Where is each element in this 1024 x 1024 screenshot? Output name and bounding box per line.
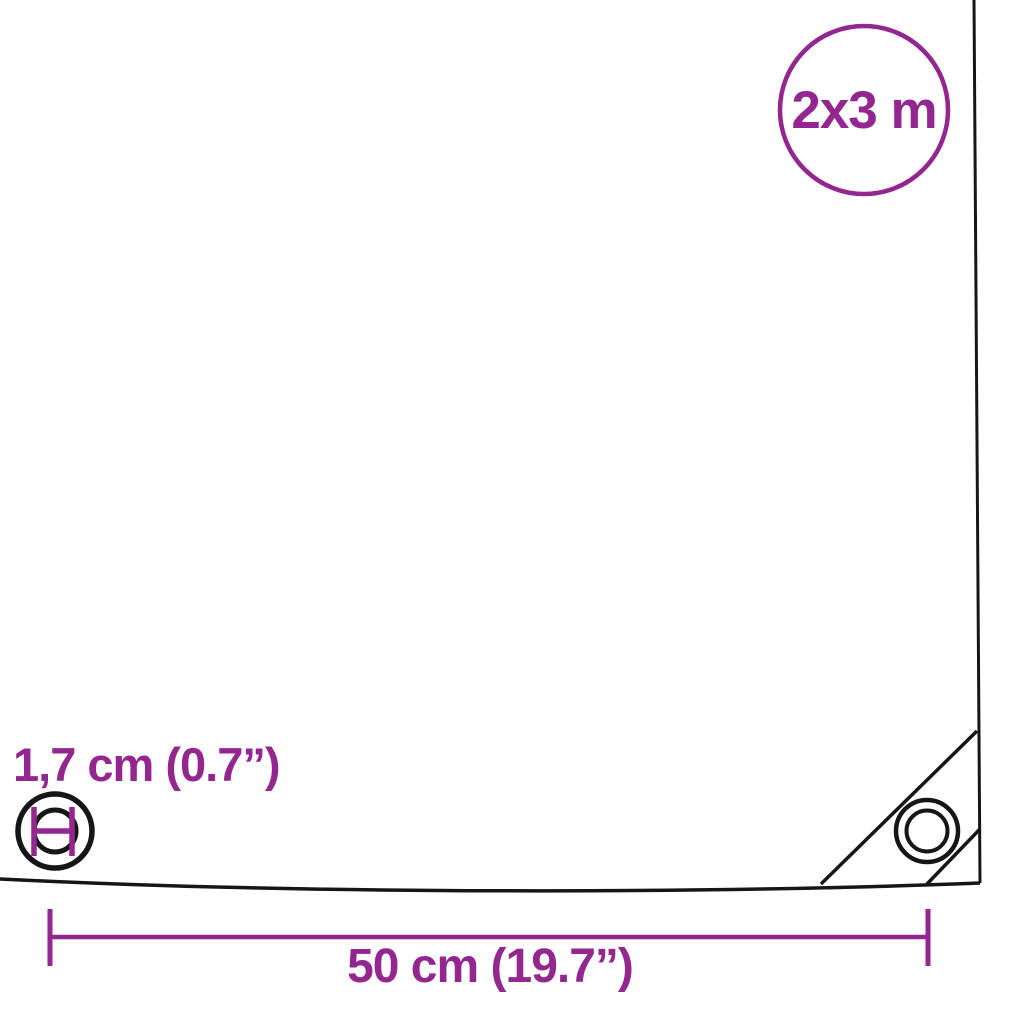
corner-seam-inner: [927, 829, 980, 884]
tarp-right-edge: [974, 0, 980, 883]
corner-seam-outer: [821, 731, 977, 884]
corner-grommet-inner-ring: [907, 811, 948, 852]
grommet-size-label: 1,7 cm (0.7”): [13, 741, 280, 788]
width-dimension-label: 50 cm (19.7”): [290, 943, 690, 991]
size-badge-label: 2x3 m: [780, 26, 948, 194]
product-dimension-diagram: 2x3 m 1,7 cm (0.7”) 50 cm (19.7”): [0, 0, 1024, 1024]
tarp-bottom-edge: [0, 879, 980, 891]
